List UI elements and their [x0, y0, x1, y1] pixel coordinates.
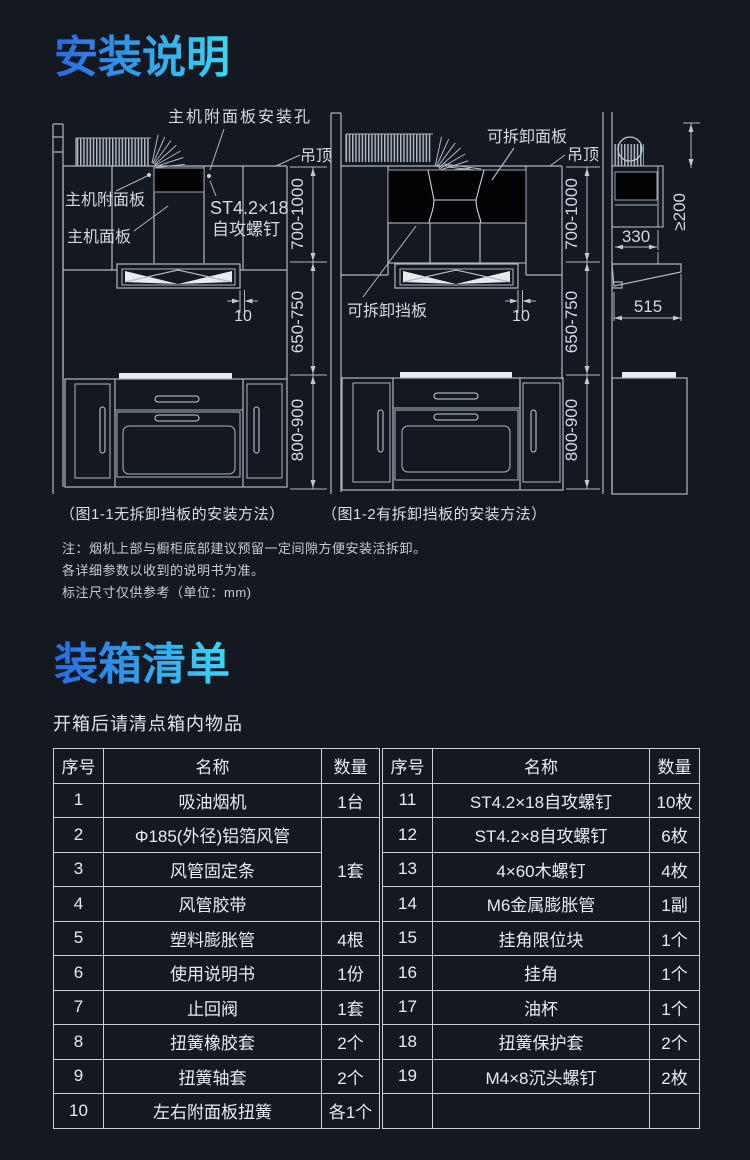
cell-qty: 2枚 [650, 1059, 700, 1094]
screw-dot-left [147, 173, 151, 177]
label-ceiling-d2: 吊顶 [567, 146, 599, 164]
note-line-3: 标注尺寸仅供参考（单位：mm) [62, 582, 252, 601]
cell-name: 风管固定条 [104, 852, 322, 887]
dim-bottom-d2: 800-900 [562, 399, 581, 461]
wall-left-d1 [53, 124, 63, 494]
label-removable-baffle: 可拆卸挡板 [347, 302, 427, 320]
cell-name: 扭簧轴套 [104, 1059, 322, 1094]
cell-qty: 2个 [322, 1025, 380, 1060]
cell-qty: 4枚 [650, 852, 700, 887]
cell-qty-merged: 1套 [322, 818, 380, 922]
cell-qty: 1套 [322, 990, 380, 1025]
cell-no: 2 [54, 818, 104, 853]
packing-table-right: 序号 名称 数量 11ST4.2×18自攻螺钉10枚 12ST4.2×8自攻螺钉… [382, 748, 700, 1129]
label-screw-spec-1: ST4.2×18 [210, 198, 289, 218]
base-cabinet-d3 [612, 372, 687, 494]
table-header-row: 序号 名称 数量 [383, 749, 700, 784]
dim-gap-d2: 10 [512, 308, 530, 325]
cell-no: 17 [383, 990, 433, 1025]
table-row: 1吸油烟机1台 [54, 783, 380, 818]
packing-subtitle: 开箱后请清点箱内物品 [53, 710, 243, 736]
cell-no: 7 [54, 990, 104, 1025]
hood-body-d2 [395, 264, 518, 288]
caption-figure-1-2: （图1-2有拆卸挡板的安装方法） [322, 503, 547, 524]
table-row: 5塑料膨胀管4根 [54, 921, 380, 956]
label-attach-panel: 主机附面板 [65, 191, 145, 209]
gap-dimension-d1: 10 [227, 290, 258, 325]
cell-no: 12 [383, 818, 433, 853]
packing-tables: 序号 名称 数量 1吸油烟机1台 2Φ185(外径)铝箔风管1套 3风管固定条 … [53, 748, 700, 1129]
table-row: 15挂角限位块1个 [383, 921, 700, 956]
cell-qty: 4根 [322, 921, 380, 956]
label-screw-spec-2: 自攻螺钉 [212, 220, 280, 239]
label-mounting-hole: 主机附面板安装孔 [168, 108, 312, 126]
header-qty: 数量 [650, 749, 700, 784]
label-main-panel: 主机面板 [67, 228, 131, 246]
wall-d3 [603, 112, 612, 494]
packing-title-text: 装箱清单 [54, 640, 230, 689]
cell-qty: 2个 [650, 1025, 700, 1060]
cell-name: 止回阀 [104, 990, 322, 1025]
table-row: 6使用说明书1份 [54, 956, 380, 991]
cell-qty: 1台 [322, 783, 380, 818]
table-row: 134×60木螺钉4枚 [383, 852, 700, 887]
dim-top-d1: 700-1000 [288, 178, 307, 250]
cell-name: 4×60木螺钉 [433, 852, 650, 887]
dim-515-d3: 515 [614, 274, 681, 321]
duct-outlet-d3 [613, 137, 644, 166]
cell-no: 11 [383, 783, 433, 818]
duct-housing-d1 [154, 168, 204, 192]
table-row: 16挂角1个 [383, 956, 700, 991]
wall-left-d2 [331, 113, 341, 494]
dim-mid-d1: 650-750 [288, 291, 307, 353]
cell-no: 10 [54, 1094, 104, 1129]
base-cabinet-d2 [342, 372, 563, 490]
cell-no: 19 [383, 1059, 433, 1094]
cell-no: 6 [54, 956, 104, 991]
cell-name: 油杯 [433, 990, 650, 1025]
cell-no: 4 [54, 887, 104, 922]
dim-clearance-d3: ≥200 [670, 123, 700, 231]
cell-qty: 10枚 [650, 783, 700, 818]
cell-qty: 1份 [322, 956, 380, 991]
caption-figure-1-1: （图1-1无拆卸挡板的安装方法） [60, 503, 285, 524]
flex-duct-d1 [76, 135, 185, 168]
table-row: 11ST4.2×18自攻螺钉10枚 [383, 783, 700, 818]
installation-diagrams: 主机附面板安装孔 吊顶 主机附面板 主机面板 ST4.2×18 自攻螺钉 10 [0, 0, 750, 540]
cell-qty: 1个 [650, 956, 700, 991]
cell-name: 挂角 [433, 956, 650, 991]
table-row: 7止回阀1套 [54, 990, 380, 1025]
cell-name: 吸油烟机 [104, 783, 322, 818]
diagram1-no-baffle: 主机附面板安装孔 吊顶 主机附面板 主机面板 ST4.2×18 自攻螺钉 10 [53, 108, 332, 494]
dimension-chain-d2: 700-1000 650-750 800-900 [562, 167, 600, 489]
packing-title: 装箱清单 [54, 635, 334, 691]
header-no: 序号 [383, 749, 433, 784]
cell-qty [650, 1094, 700, 1129]
cell-qty: 6枚 [650, 818, 700, 853]
cell-no: 9 [54, 1059, 104, 1094]
countertop-d2 [400, 372, 512, 378]
diagram3-side-view: 330 515 ≥200 [603, 112, 700, 494]
table-row-empty [383, 1094, 700, 1129]
header-no: 序号 [54, 749, 104, 784]
hood-body-d1 [117, 264, 240, 288]
cell-no: 14 [383, 887, 433, 922]
dimension-chain-d1: 700-1000 650-750 800-900 [288, 167, 327, 489]
header-qty: 数量 [322, 749, 380, 784]
note-line-2: 各详细参数以收到的说明书为准。 [62, 560, 265, 579]
diagram2-with-baffle: 可拆卸面板 吊顶 可拆卸挡板 10 [331, 113, 600, 494]
table-row: 9扭簧轴套2个 [54, 1059, 380, 1094]
packing-table-left: 序号 名称 数量 1吸油烟机1台 2Φ185(外径)铝箔风管1套 3风管固定条 … [53, 748, 380, 1129]
cell-no [383, 1094, 433, 1129]
dim-width-d3: 330 [622, 227, 650, 246]
cell-name: ST4.2×8自攻螺钉 [433, 818, 650, 853]
dim-bottom-d1: 800-900 [288, 399, 307, 461]
table-header-row: 序号 名称 数量 [54, 749, 380, 784]
cell-name: ST4.2×18自攻螺钉 [433, 783, 650, 818]
table-row: 17油杯1个 [383, 990, 700, 1025]
dim-clearance-text: ≥200 [670, 193, 689, 231]
cell-qty: 1个 [650, 990, 700, 1025]
cell-name: M4×8沉头螺钉 [433, 1059, 650, 1094]
table-row: 12ST4.2×8自攻螺钉6枚 [383, 818, 700, 853]
cell-no: 5 [54, 921, 104, 956]
table-row: 18扭簧保护套2个 [383, 1025, 700, 1060]
cell-no: 18 [383, 1025, 433, 1060]
gap-dimension-d2: 10 [505, 290, 536, 325]
label-removable-panel: 可拆卸面板 [487, 128, 567, 146]
dim-top-d2: 700-1000 [562, 178, 581, 250]
cell-name: 扭簧保护套 [433, 1025, 650, 1060]
dim-mid-d2: 650-750 [562, 291, 581, 353]
dim-depth-d3: 515 [634, 297, 662, 316]
hood-side-d3 [612, 166, 663, 227]
cell-no: 15 [383, 921, 433, 956]
cell-qty: 各1个 [322, 1094, 380, 1129]
cell-no: 16 [383, 956, 433, 991]
countertop-d1 [119, 373, 232, 379]
note-line-1: 注：烟机上部与橱柜底部建议预留一定间隙方便安装活拆卸。 [62, 538, 427, 557]
table-row: 10左右附面板扭簧各1个 [54, 1094, 380, 1129]
cell-name: 使用说明书 [104, 956, 322, 991]
dim-gap-d1: 10 [234, 308, 252, 325]
cell-name: Φ185(外径)铝箔风管 [104, 818, 322, 853]
hood-slope-d3 [612, 252, 681, 288]
manual-page: { "install": { "title": "安装说明" }, "diagr… [0, 0, 750, 1160]
header-name: 名称 [104, 749, 322, 784]
header-name: 名称 [433, 749, 650, 784]
base-cabinet-d1 [65, 373, 287, 487]
table-row: 8扭簧橡胶套2个 [54, 1025, 380, 1060]
cell-name: 塑料膨胀管 [104, 921, 322, 956]
cell-name: 左右附面板扭簧 [104, 1094, 322, 1129]
table-row: 19M4×8沉头螺钉2枚 [383, 1059, 700, 1094]
cell-no: 3 [54, 852, 104, 887]
cell-qty: 1副 [650, 887, 700, 922]
table-row: 2Φ185(外径)铝箔风管1套 [54, 818, 380, 853]
cell-qty: 2个 [322, 1059, 380, 1094]
cell-no: 1 [54, 783, 104, 818]
cell-name: M6金属膨胀管 [433, 887, 650, 922]
cell-name: 挂角限位块 [433, 921, 650, 956]
cell-qty: 1个 [650, 921, 700, 956]
dim-330-d3: 330 [615, 227, 658, 250]
label-ceiling-d1: 吊顶 [300, 147, 332, 165]
cell-no: 13 [383, 852, 433, 887]
screw-dot-right [207, 174, 211, 178]
cell-no: 8 [54, 1025, 104, 1060]
countertop-d3 [622, 372, 676, 378]
cell-name: 扭簧橡胶套 [104, 1025, 322, 1060]
cell-name: 风管胶带 [104, 887, 322, 922]
table-row: 14M6金属膨胀管1副 [383, 887, 700, 922]
cell-name [433, 1094, 650, 1129]
